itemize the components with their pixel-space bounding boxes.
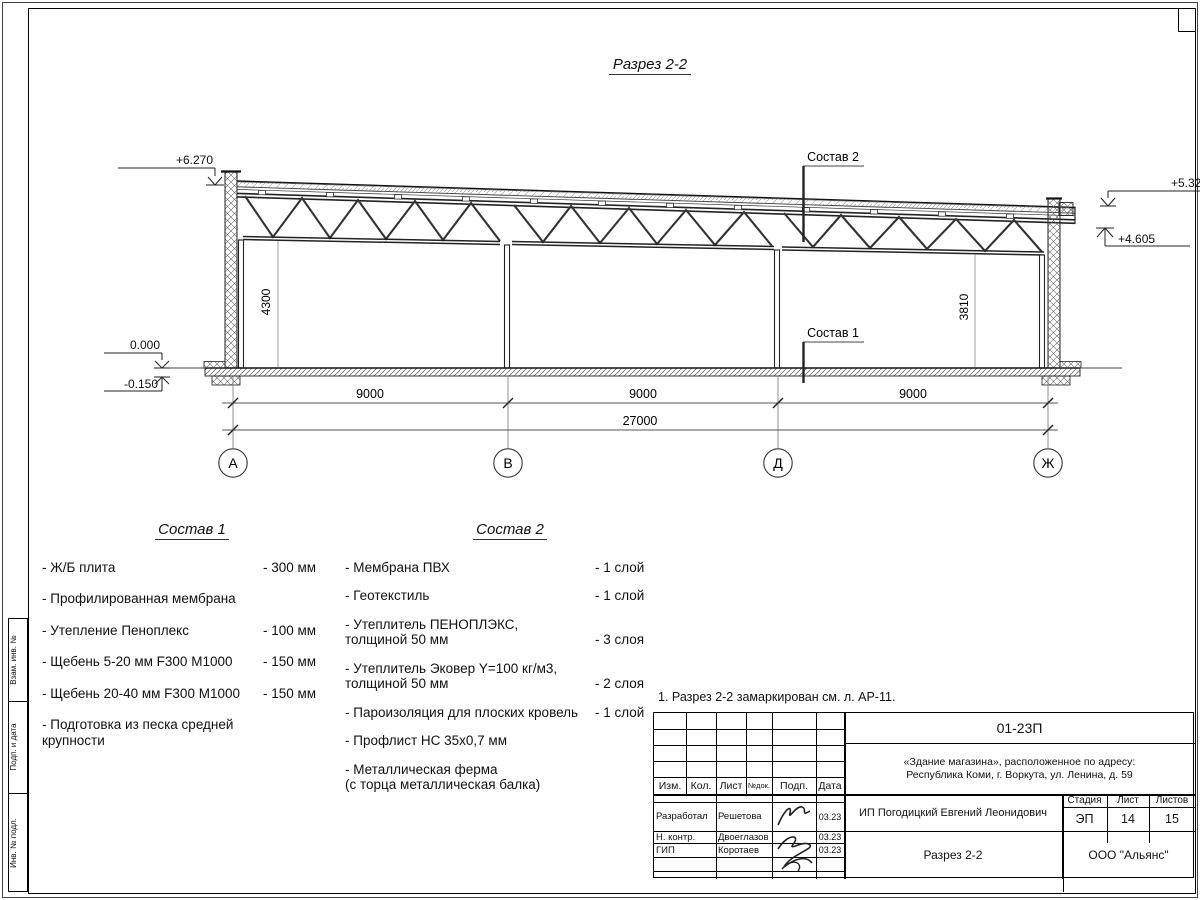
signature-1 [772,799,816,831]
composition-2: Состав 2 - Мембрана ПВХ- 1 слой - Геотек… [345,522,675,806]
tb-name-1: Решетова [718,802,772,831]
list-item: - Щебень 5-20 мм F300 М1000- 150 мм [42,654,342,670]
section-drawing: 9000 9000 9000 27000 4300 3810 А В Д Ж [0,0,1200,520]
axis-b: В [503,455,512,471]
callout-floor-label: Состав 1 [807,326,859,340]
tb-name-3: Коротаев [718,843,772,857]
tb-drawing-name: Разрез 2-2 [844,831,1062,879]
svg-text:-0.150: -0.150 [124,377,158,391]
list-item: - Утеплитель ПЕНОПЛЭКС, толщиной 50 мм- … [345,617,675,648]
list-item: - Утеплитель Эковер Y=100 кг/м3, толщино… [345,661,675,692]
composition-2-title: Состав 2 [345,522,675,538]
tb-role-2: Н. контр. [656,831,716,843]
list-item: - Ж/Б плита- 300 мм [42,560,342,576]
list-item: - Подготовка из песка средней крупности [42,717,342,748]
elevation-marks [104,168,1200,391]
height-dimensions: 4300 3810 [259,241,975,367]
frame-margin-column: Взам. инв. № Подп. и дата Инв. № подл. [8,618,28,892]
floor-slab [162,362,1122,386]
tb-sheets-label: Листов [1149,794,1195,807]
list-item: - Утепление Пеноплекс- 100 мм [42,623,342,639]
list-item: - Профлист НС 35х0,7 мм [345,733,675,749]
margin-label-vzam: Взам. инв. № [9,620,27,700]
tb-col-kol: Кол. [686,777,716,794]
grid-bubbles: А В Д Ж [219,449,1062,477]
tb-sheet-label: Лист [1107,794,1149,807]
columns [239,240,1045,368]
signature-2 [770,829,818,877]
tb-stage-label: Стадия [1062,794,1107,807]
list-item: - Геотекстиль- 1 слой [345,588,675,604]
svg-text:+5.327: +5.327 [1171,176,1200,190]
dim-span1: 9000 [356,387,384,401]
tb-date-3: 03.23 [816,843,844,857]
axis-zh: Ж [1042,455,1055,471]
tb-customer: ИП Погодицкий Евгений Леонидович [844,794,1062,831]
tb-doc-number: 01-23П [844,713,1195,743]
tb-col-izm: Изм. [654,777,686,794]
tb-role-1: Разработал [656,802,716,831]
tb-object: «Здание магазина», расположенное по адре… [844,743,1195,794]
svg-text:0.000: 0.000 [130,338,160,352]
tb-sheets-value: 15 [1149,807,1195,831]
drawing-sheet: Разрез 2-2 [0,0,1200,900]
list-item: - Пароизоляция для плоских кровель- 1 сл… [345,705,675,721]
tb-company: ООО "Альянс" [1062,831,1195,879]
axis-a: А [228,455,238,471]
tb-col-list: Лист [716,777,746,794]
margin-label-podp: Подп. и дата [9,707,27,787]
dim-span2: 9000 [629,387,657,401]
sheet-note: 1. Разрез 2-2 замаркирован см. л. АР-11. [658,690,895,704]
dimension-lines: 9000 9000 9000 27000 [222,387,1058,435]
dim-height-right: 3810 [957,293,971,320]
dim-span3: 9000 [899,387,927,401]
elevation-plus5327 [1100,191,1200,206]
tb-date-1: 03.23 [816,802,844,831]
margin-label-inv: Инв. № подл. [9,803,27,883]
composition-1: Состав 1 - Ж/Б плита- 300 мм - Профилиро… [42,522,342,764]
list-item: - Металлическая ферма (с торца металличе… [345,762,675,793]
tb-name-2: Двоеглазов [718,831,772,843]
axis-d: Д [773,455,783,471]
tb-sheet-value: 14 [1107,807,1149,831]
tb-col-podp: Подп. [772,777,816,794]
elevation-zero [104,353,170,368]
elevation-plus6270 [118,168,224,185]
callouts: Состав 2 Состав 1 [803,150,864,383]
dim-height-left: 4300 [259,288,273,315]
tb-date-2: 03.23 [816,831,844,843]
tb-col-ndok: №док. [746,777,772,794]
callout-roof-label: Состав 2 [807,150,859,164]
tb-col-data: Дата [816,777,844,794]
list-item: - Щебень 20-40 мм F300 М1000- 150 мм [42,686,342,702]
tb-stage-value: ЭП [1062,807,1107,831]
list-item: - Мембрана ПВХ- 1 слой [345,560,675,576]
dim-total: 27000 [623,414,658,428]
tb-role-3: ГИП [656,843,716,857]
composition-1-title: Состав 1 [42,522,342,538]
list-item: - Профилированная мембрана [42,591,342,607]
svg-text:+6.270: +6.270 [176,153,213,167]
title-block: Изм. Кол. Лист №док. Подп. Дата Разработ… [653,712,1194,878]
svg-text:+4.605: +4.605 [1118,232,1155,246]
